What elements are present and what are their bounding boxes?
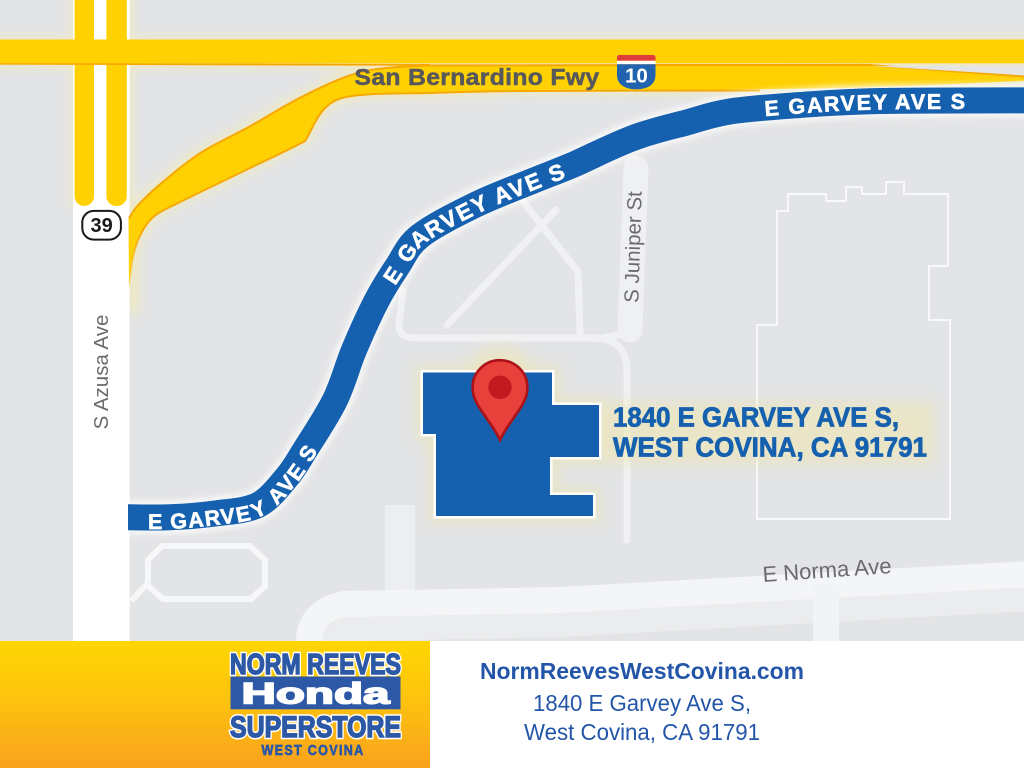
svg-text:S Juniper St: S Juniper St	[620, 191, 646, 304]
svg-text:SUPERSTORE: SUPERSTORE	[230, 711, 401, 744]
svg-text:NormReevesWestCovina.com: NormReevesWestCovina.com	[480, 658, 804, 684]
svg-text:10: 10	[625, 65, 648, 88]
svg-text:S Azusa Ave: S Azusa Ave	[90, 315, 113, 430]
svg-text:San Bernardino Fwy: San Bernardino Fwy	[355, 64, 600, 90]
svg-text:NORM REEVES: NORM REEVES	[230, 649, 401, 681]
svg-text:WEST COVINA, CA 91791: WEST COVINA, CA 91791	[613, 432, 927, 463]
svg-text:West Covina, CA 91791: West Covina, CA 91791	[524, 719, 760, 745]
svg-text:1840 E GARVEY AVE S,: 1840 E GARVEY AVE S,	[613, 402, 899, 433]
svg-text:WEST COVINA: WEST COVINA	[262, 743, 365, 759]
svg-text:Honda: Honda	[242, 678, 390, 711]
svg-text:1840 E Garvey Ave S,: 1840 E Garvey Ave S,	[533, 690, 751, 716]
svg-text:39: 39	[90, 215, 112, 237]
